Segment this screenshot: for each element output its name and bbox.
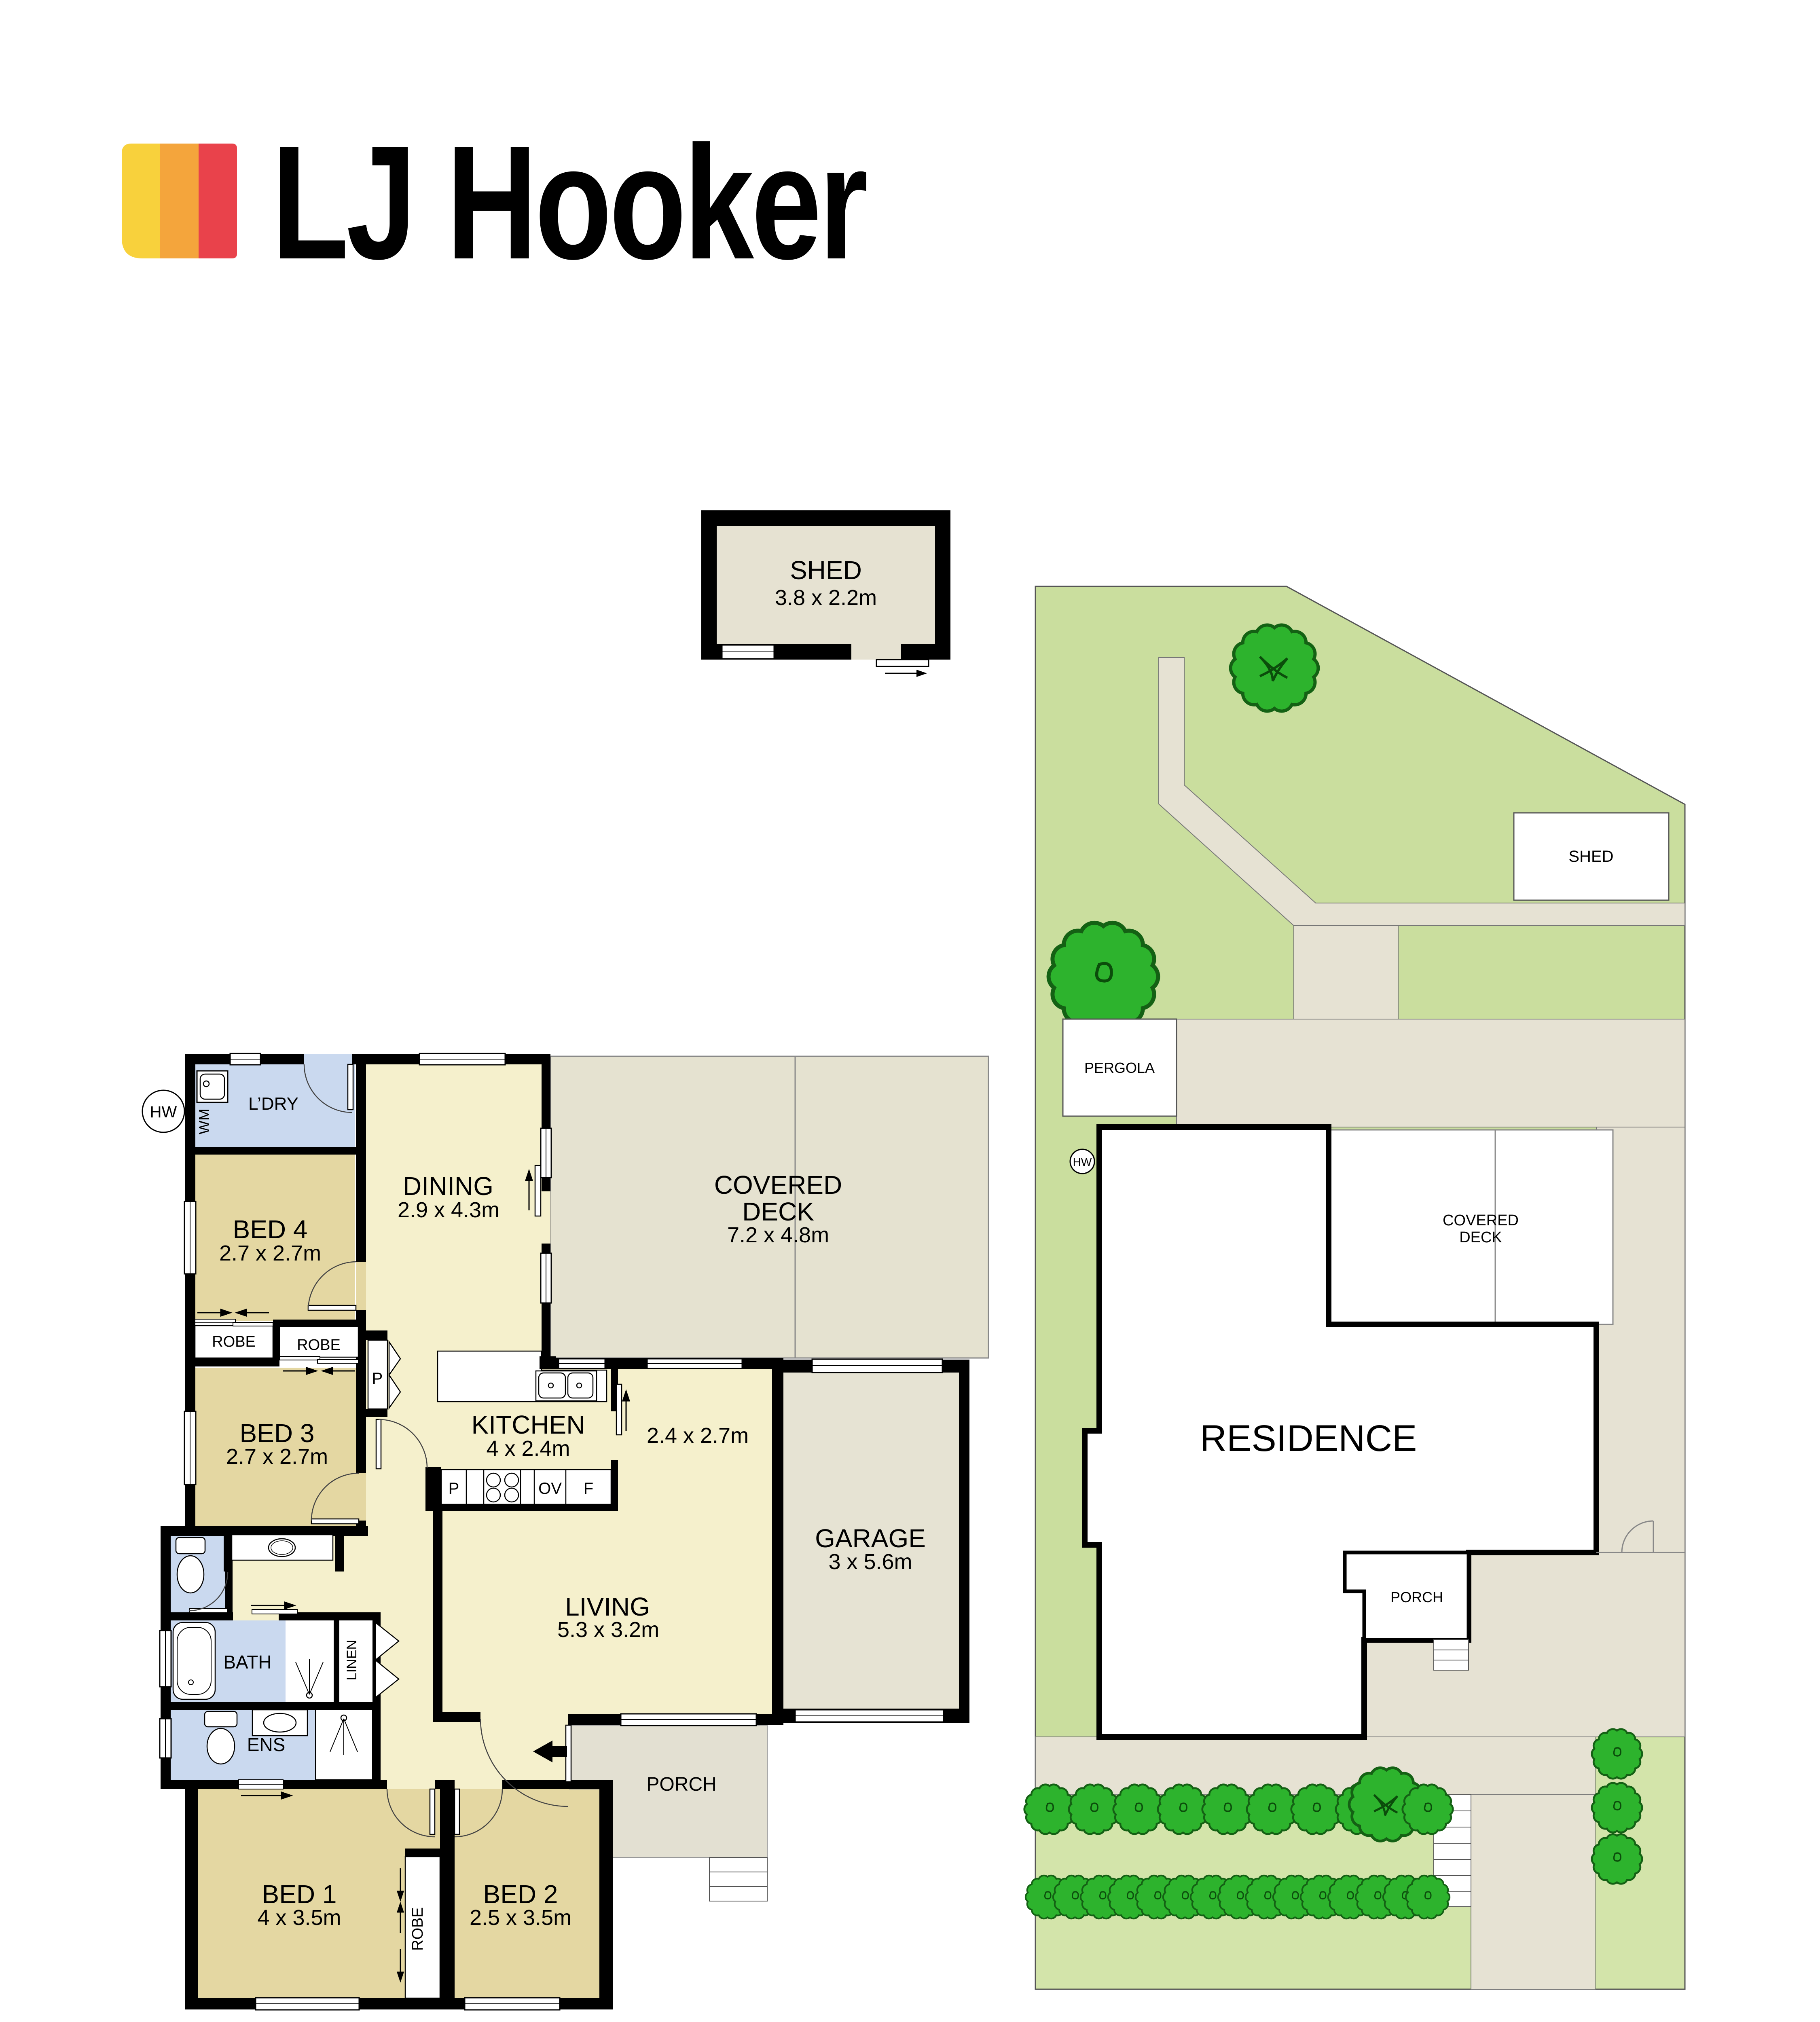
svg-text:P: P — [449, 1480, 459, 1497]
svg-text:7.2 x 4.8m: 7.2 x 4.8m — [727, 1223, 829, 1247]
svg-text:RESIDENCE: RESIDENCE — [1200, 1418, 1417, 1459]
svg-text:ENS: ENS — [247, 1734, 286, 1755]
svg-text:DINING: DINING — [403, 1172, 493, 1201]
svg-text:4 x 2.4m: 4 x 2.4m — [486, 1436, 570, 1461]
svg-text:LIVING: LIVING — [565, 1592, 650, 1621]
svg-text:ROBE: ROBE — [297, 1337, 341, 1354]
svg-text:LINEN: LINEN — [344, 1640, 360, 1680]
svg-text:PERGOLA: PERGOLA — [1084, 1060, 1155, 1076]
svg-text:SHED: SHED — [1568, 848, 1613, 865]
svg-text:5.3 x 3.2m: 5.3 x 3.2m — [557, 1618, 659, 1642]
svg-text:HW: HW — [150, 1103, 177, 1121]
svg-text:3 x 5.6m: 3 x 5.6m — [828, 1550, 912, 1574]
svg-text:BED 3: BED 3 — [240, 1419, 315, 1448]
svg-text:P: P — [372, 1370, 383, 1387]
svg-text:2.4 x 2.7m: 2.4 x 2.7m — [647, 1423, 749, 1448]
svg-text:WM: WM — [196, 1108, 212, 1134]
svg-text:PORCH: PORCH — [1390, 1589, 1443, 1605]
svg-text:GARAGE: GARAGE — [815, 1524, 926, 1553]
svg-text:SHED: SHED — [790, 556, 862, 585]
svg-text:ROBE: ROBE — [212, 1333, 256, 1350]
svg-text:KITCHEN: KITCHEN — [472, 1410, 585, 1439]
svg-text:BED 4: BED 4 — [233, 1215, 308, 1244]
svg-text:COVERED: COVERED — [1443, 1212, 1519, 1229]
svg-text:BATH: BATH — [223, 1652, 271, 1673]
svg-text:COVERED: COVERED — [714, 1170, 842, 1199]
svg-text:OV: OV — [538, 1480, 562, 1497]
svg-text:BED 1: BED 1 — [262, 1880, 337, 1909]
svg-text:4 x 3.5m: 4 x 3.5m — [257, 1906, 341, 1930]
svg-text:BED 2: BED 2 — [483, 1880, 558, 1909]
svg-text:PORCH: PORCH — [646, 1774, 716, 1795]
svg-text:LJ Hooker: LJ Hooker — [272, 112, 866, 293]
svg-text:2.7 x 2.7m: 2.7 x 2.7m — [219, 1241, 321, 1265]
svg-text:HW: HW — [1073, 1156, 1092, 1168]
svg-text:DECK: DECK — [742, 1197, 814, 1226]
svg-text:DECK: DECK — [1459, 1229, 1502, 1246]
svg-text:L’DRY: L’DRY — [248, 1094, 298, 1114]
svg-text:3.8 x 2.2m: 3.8 x 2.2m — [775, 586, 877, 610]
svg-text:ROBE: ROBE — [409, 1907, 426, 1951]
svg-text:F: F — [584, 1480, 593, 1497]
svg-text:2.7 x 2.7m: 2.7 x 2.7m — [226, 1445, 328, 1469]
svg-text:2.9 x 4.3m: 2.9 x 4.3m — [398, 1198, 499, 1222]
svg-text:2.5 x 3.5m: 2.5 x 3.5m — [470, 1906, 571, 1930]
